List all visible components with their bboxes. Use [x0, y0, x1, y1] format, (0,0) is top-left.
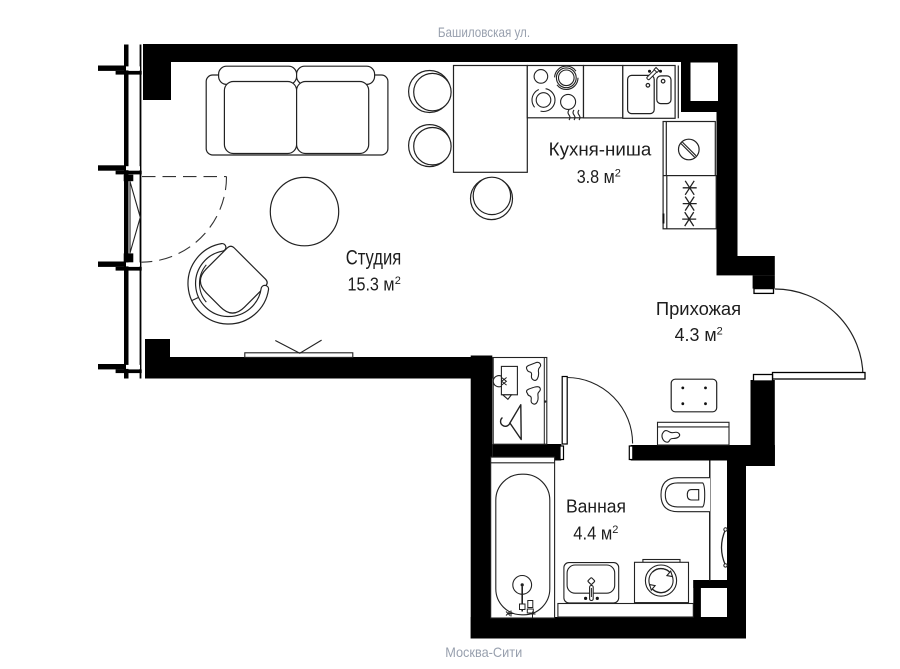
svg-text:2: 2 [395, 275, 401, 287]
svg-text:3.8 м: 3.8 м [577, 167, 615, 187]
svg-text:Прихожая: Прихожая [656, 299, 741, 319]
svg-text:Ванная: Ванная [566, 496, 626, 516]
svg-text:2: 2 [717, 326, 723, 338]
svg-text:Москва-Сити: Москва-Сити [445, 645, 522, 660]
svg-text:4.4 м: 4.4 м [573, 524, 612, 544]
svg-text:Студия: Студия [346, 245, 402, 269]
svg-text:2: 2 [615, 168, 621, 180]
svg-text:Кухня-ниша: Кухня-ниша [549, 139, 653, 159]
svg-text:2: 2 [612, 524, 618, 536]
svg-text:4.3 м: 4.3 м [675, 325, 717, 345]
svg-text:15.3 м: 15.3 м [348, 275, 395, 295]
svg-text:Башиловская ул.: Башиловская ул. [438, 25, 530, 40]
